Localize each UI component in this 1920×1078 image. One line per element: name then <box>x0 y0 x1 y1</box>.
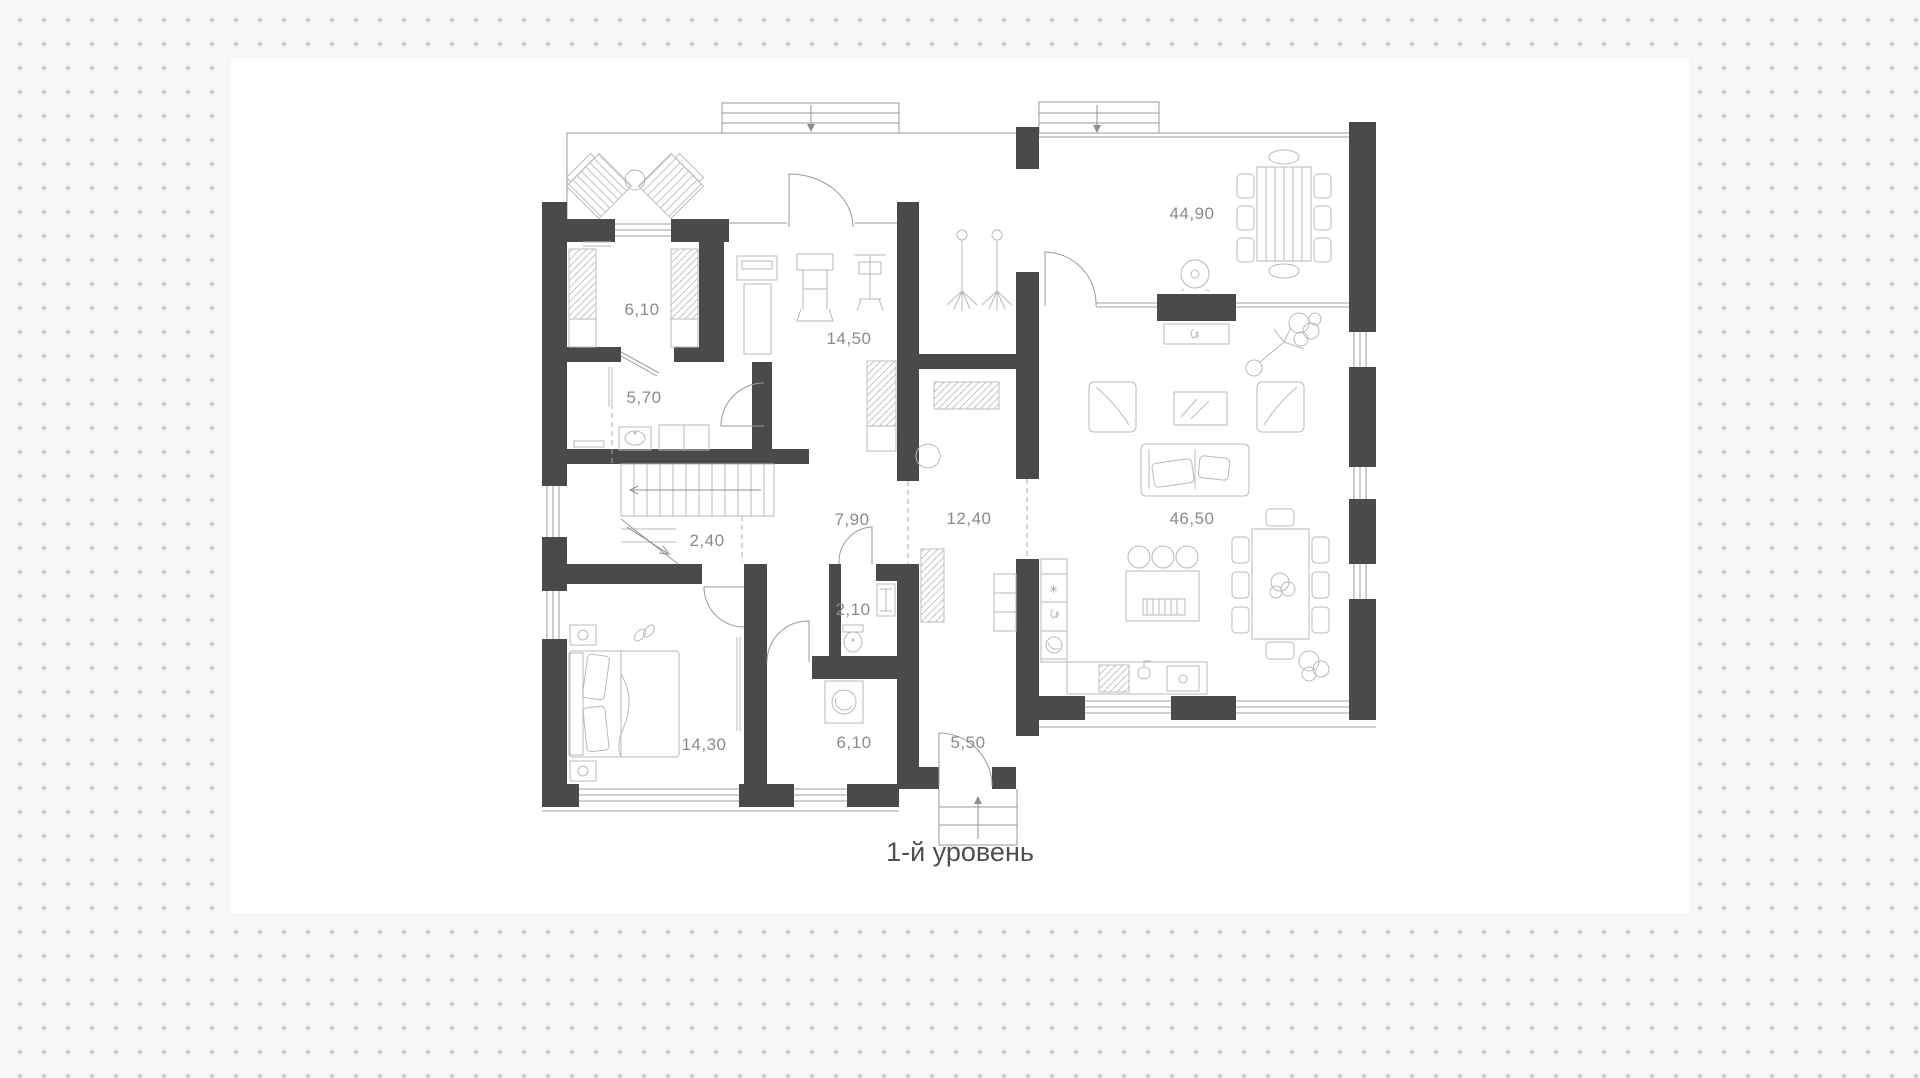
floor-plan-canvas: ✳ 6,10 5,70 14,50 44,90 2,40 7,90 12,40 … <box>231 59 1689 913</box>
sofa-icon <box>1141 444 1249 496</box>
washing-machine-icon <box>825 681 863 723</box>
room-label-bathroom: 6,10 <box>836 733 871 752</box>
slippers-icon <box>632 623 656 643</box>
bathroom-fixtures <box>825 681 863 723</box>
porch-steps-top-right <box>1039 102 1159 133</box>
mirror-icon <box>737 637 740 731</box>
terrace-furniture <box>562 149 708 218</box>
plant-icon <box>1299 651 1329 681</box>
closet-rail-icon <box>934 382 999 409</box>
lounge-chair-icon <box>638 149 707 218</box>
door-terrace-gym <box>789 174 853 227</box>
hall-storage <box>921 549 1016 631</box>
hallway-storage <box>867 361 999 468</box>
pouf-icon <box>916 444 940 468</box>
wardrobe-icon <box>921 549 944 622</box>
cabinet-icon <box>994 574 1016 631</box>
bedroom-furniture <box>569 623 740 781</box>
coat-rack-icon <box>947 230 977 311</box>
room-label-dining-room: 44,90 <box>1169 204 1214 223</box>
room-label-wc: 2,10 <box>835 600 870 619</box>
faucet-icon <box>1138 667 1150 679</box>
bed-icon <box>569 651 679 757</box>
hob-icon <box>1041 602 1067 631</box>
kitchen-counter: ✳ <box>1041 559 1207 694</box>
door-vestibule-dining <box>1045 252 1096 306</box>
dining-table-icon <box>1232 509 1329 659</box>
plant-icon <box>1270 573 1295 598</box>
room-label-living-kitchen: 46,50 <box>1169 509 1214 528</box>
nightstand-icon <box>570 761 596 781</box>
door-bathroom <box>767 621 809 662</box>
door-wc <box>839 527 872 564</box>
coat-rack-icon <box>982 230 1012 311</box>
room-label-stair-hall: 2,40 <box>689 531 724 550</box>
kitchen-island-icon <box>1126 546 1199 621</box>
wardrobe-room-furniture <box>569 242 698 347</box>
bench-icon <box>574 441 604 447</box>
shower-room-furniture <box>574 367 709 450</box>
coffee-table-icon <box>1174 392 1227 425</box>
bar-stool-icon <box>1152 546 1174 568</box>
dishwasher-icon <box>1099 665 1129 692</box>
nightstand-icon <box>570 625 596 645</box>
room-label-wardrobe-room: 6,10 <box>624 300 659 319</box>
level-caption: 1-й уровень <box>886 837 1034 867</box>
bar-stool-icon <box>1128 546 1150 568</box>
ceiling-light-icon <box>1181 260 1209 291</box>
porch-steps-top-left <box>722 103 899 133</box>
door-wardrobe-room <box>621 352 659 376</box>
room-label-gym: 14,50 <box>826 329 871 348</box>
room-label-hallway: 7,90 <box>834 510 869 529</box>
weight-rack-icon <box>854 255 886 311</box>
room-label-entrance-hall: 5,50 <box>950 733 985 752</box>
coat-rack-icons <box>947 230 1012 311</box>
svg-text:✳: ✳ <box>1049 583 1058 596</box>
treadmill-icon <box>737 256 777 354</box>
sink-icon <box>1167 666 1199 691</box>
dining-table-icon <box>1237 150 1331 278</box>
toilet-icon <box>843 625 863 652</box>
page: { "title": "1-й уровень", "plan": { "cap… <box>0 0 1920 1078</box>
exercise-bike-icon <box>797 254 833 321</box>
wardrobe-icon <box>671 249 698 319</box>
room-label-corridor: 12,40 <box>946 509 991 528</box>
floor-plan-drawing: ✳ 6,10 5,70 14,50 44,90 2,40 7,90 12,40 … <box>231 59 1689 913</box>
wardrobe-icon <box>569 249 596 319</box>
washbasin-icon <box>877 584 895 616</box>
room-label-shower-room: 5,70 <box>626 388 661 407</box>
door-bedroom <box>704 587 744 627</box>
bar-stool-icon <box>1176 546 1198 568</box>
sink-icon <box>619 427 651 450</box>
plant-icon <box>1289 313 1321 346</box>
wardrobe-icon <box>867 361 896 426</box>
room-label-bedroom: 14,30 <box>681 735 726 754</box>
lounge-chair-icon <box>562 149 631 218</box>
mirror-icon <box>609 367 612 407</box>
appliance-icon <box>1041 631 1067 659</box>
dining-room-furniture <box>1164 150 1331 376</box>
opening-dashes <box>612 404 1027 564</box>
living-kitchen-furniture: ✳ <box>1041 382 1329 694</box>
fireplace-icon <box>1164 324 1229 344</box>
